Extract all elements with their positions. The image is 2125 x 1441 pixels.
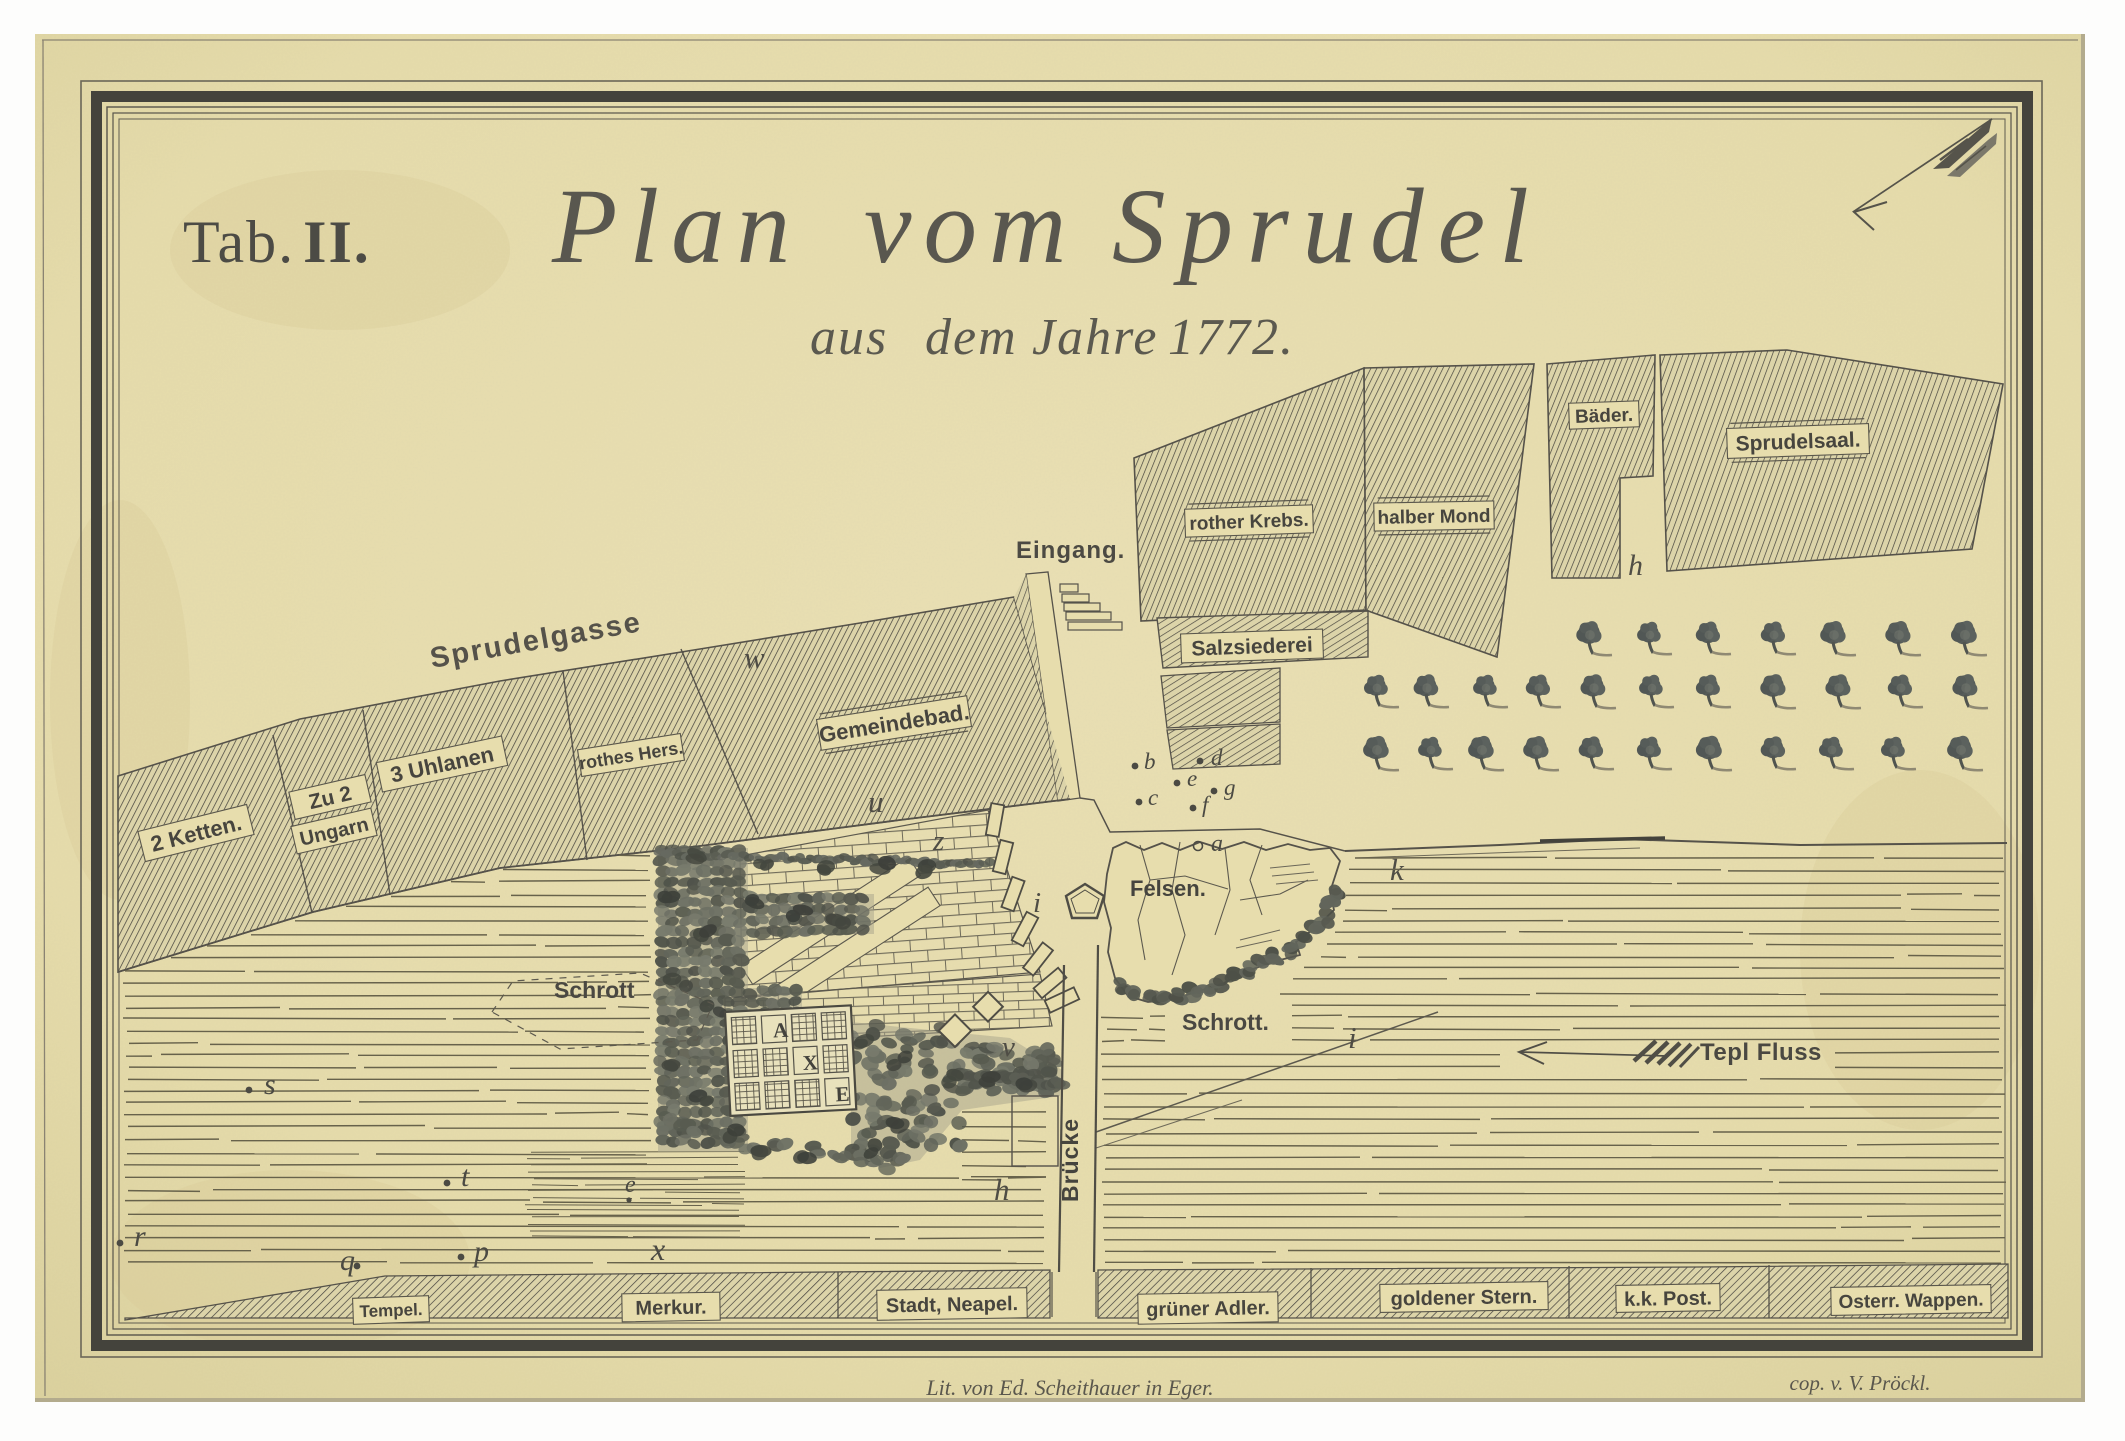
svg-text:Tempel.: Tempel. bbox=[359, 1300, 423, 1321]
svg-text:Bäder.: Bäder. bbox=[1575, 405, 1634, 428]
svg-text:x: x bbox=[650, 1231, 665, 1267]
svg-text:q: q bbox=[340, 1244, 355, 1277]
svg-text:h: h bbox=[1628, 549, 1643, 582]
svg-text:ausdemJahre1772.: ausdemJahre1772. bbox=[810, 309, 1295, 366]
svg-text:Stadt, Neapel.: Stadt, Neapel. bbox=[886, 1293, 1019, 1317]
svg-text:Sprudelsaal.: Sprudelsaal. bbox=[1735, 428, 1861, 455]
svg-text:d: d bbox=[1211, 745, 1223, 770]
svg-text:A: A bbox=[772, 1018, 789, 1043]
svg-text:k.k. Post.: k.k. Post. bbox=[1624, 1287, 1712, 1311]
svg-text:e: e bbox=[1187, 766, 1197, 791]
svg-text:b: b bbox=[1144, 749, 1156, 774]
svg-text:p: p bbox=[472, 1235, 489, 1268]
svg-text:h: h bbox=[994, 1172, 1010, 1207]
svg-text:E: E bbox=[835, 1082, 850, 1107]
svg-text:t: t bbox=[461, 1160, 470, 1193]
svg-text:i: i bbox=[1033, 887, 1041, 919]
svg-text:PlanvomSprudel: PlanvomSprudel bbox=[551, 168, 1543, 286]
svg-text:v: v bbox=[1002, 1031, 1015, 1063]
svg-text:s: s bbox=[264, 1068, 276, 1101]
svg-text:w: w bbox=[744, 640, 765, 675]
svg-text:r: r bbox=[134, 1220, 146, 1253]
svg-text:e: e bbox=[625, 1172, 636, 1198]
svg-text:Tab.II.: Tab.II. bbox=[183, 209, 371, 275]
svg-text:rother Krebs.: rother Krebs. bbox=[1189, 510, 1309, 535]
svg-text:Schrott.: Schrott. bbox=[1182, 1009, 1269, 1035]
svg-text:Lit. von Ed. Scheithauer in Eg: Lit. von Ed. Scheithauer in Eger. bbox=[925, 1375, 1213, 1400]
svg-text:X: X bbox=[802, 1050, 818, 1075]
svg-text:Osterr. Wappen.: Osterr. Wappen. bbox=[1838, 1290, 1983, 1314]
svg-text:c: c bbox=[1148, 785, 1158, 810]
svg-text:goldener Stern.: goldener Stern. bbox=[1390, 1286, 1537, 1311]
svg-text:a: a bbox=[1211, 831, 1223, 857]
svg-text:Schrott: Schrott bbox=[554, 977, 635, 1003]
svg-text:Tepl Fluss: Tepl Fluss bbox=[1700, 1039, 1822, 1066]
svg-text:Salzsiederei: Salzsiederei bbox=[1191, 633, 1313, 660]
svg-text:cop. v. V. Pröckl.: cop. v. V. Pröckl. bbox=[1790, 1371, 1931, 1395]
svg-text:Merkur.: Merkur. bbox=[635, 1297, 707, 1320]
svg-text:g: g bbox=[1224, 775, 1236, 800]
svg-text:u: u bbox=[868, 784, 884, 819]
svg-text:z: z bbox=[932, 825, 944, 857]
svg-text:grüner Adler.: grüner Adler. bbox=[1146, 1297, 1270, 1321]
svg-text:Felsen.: Felsen. bbox=[1130, 876, 1206, 901]
svg-text:halber Mond: halber Mond bbox=[1377, 506, 1490, 529]
svg-text:Brücke: Brücke bbox=[1057, 1118, 1083, 1202]
svg-text:Eingang.: Eingang. bbox=[1016, 537, 1125, 564]
svg-text:i: i bbox=[1348, 1020, 1357, 1055]
